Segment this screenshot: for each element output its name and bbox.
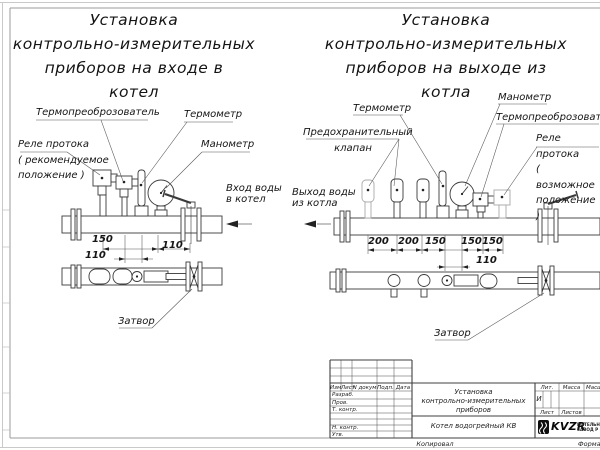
right-thermometer-label: Термометр — [353, 102, 411, 115]
tb-lit-label: Лит. — [535, 385, 559, 392]
right-valve-label: Затвор — [434, 327, 471, 340]
right-dim-150-b: 150 — [461, 236, 482, 247]
tb-col-izm: Изм — [330, 385, 341, 392]
right-dim-200-b: 200 — [398, 236, 419, 247]
kvzr-logo-caption: КОТЕЛЬНЫ ЗАВОД Р — [577, 422, 600, 433]
right-manometer-label: Манометр — [498, 91, 551, 104]
right-thermotransducer-label: Термопреоброзователь — [496, 111, 600, 124]
right-dim-150-c: 150 — [482, 236, 503, 247]
right-dim-110: 110 — [476, 255, 497, 266]
right-flow-relay-label: Реле протока ( возможное положение ) — [536, 131, 600, 224]
left-dim-110-b: 110 — [85, 250, 106, 261]
tb-col-ndocum: N докум — [352, 385, 377, 392]
left-dim-110-a: 110 — [162, 240, 183, 251]
left-valve-label: Затвор — [118, 315, 155, 328]
tb-sheet-label: Лист — [535, 410, 559, 417]
right-dim-150-a: 150 — [425, 236, 446, 247]
left-flow-relay-label: Реле протока ( рекомендуемое положение ) — [18, 137, 109, 184]
format-label: Формат — [578, 440, 600, 448]
tb-col-list: Лист — [341, 385, 352, 392]
right-flow-note: Выход воды из котла — [292, 187, 356, 209]
tb-lit-value: И — [535, 395, 543, 404]
left-manometer-label: Манометр — [201, 138, 254, 151]
tb-doc-subtitle: Котел водогрейный КВ — [413, 422, 534, 431]
tb-scale-label: Масштаб — [586, 385, 600, 392]
left-dim-150: 150 — [92, 234, 113, 245]
drawing-sheet: Установка контрольно-измерительных прибо… — [0, 0, 600, 450]
tb-row-razrab: Разраб. — [332, 392, 354, 399]
tb-mass-label: Масса — [559, 385, 584, 392]
tb-row-tkontr: Т. контр. — [332, 407, 358, 414]
tb-row-utv: Утв. — [332, 432, 344, 439]
tb-col-data: Дата — [394, 385, 412, 392]
tb-sheets-label: Листов — [559, 410, 584, 417]
copied-label: Копировал — [395, 440, 475, 448]
right-safety-valve-label: Предохранительный клапан — [303, 125, 403, 156]
tb-col-podp: Подп. — [377, 385, 394, 392]
tb-row-prov: Пров. — [332, 400, 348, 407]
left-flow-note: Вход воды в котел — [226, 183, 282, 205]
left-diagram-title: Установка контрольно-измерительных прибо… — [12, 8, 256, 104]
right-diagram-title: Установка контрольно-измерительных прибо… — [324, 8, 568, 104]
left-thermometer-label: Термометр — [184, 108, 242, 121]
right-dim-200-a: 200 — [368, 236, 389, 247]
kvzr-emblem-icon — [538, 420, 549, 434]
left-thermotransducer-label: Термопреоброзователь — [36, 106, 160, 119]
tb-doc-title: Установка контрольно-измерительных прибо… — [413, 388, 534, 415]
